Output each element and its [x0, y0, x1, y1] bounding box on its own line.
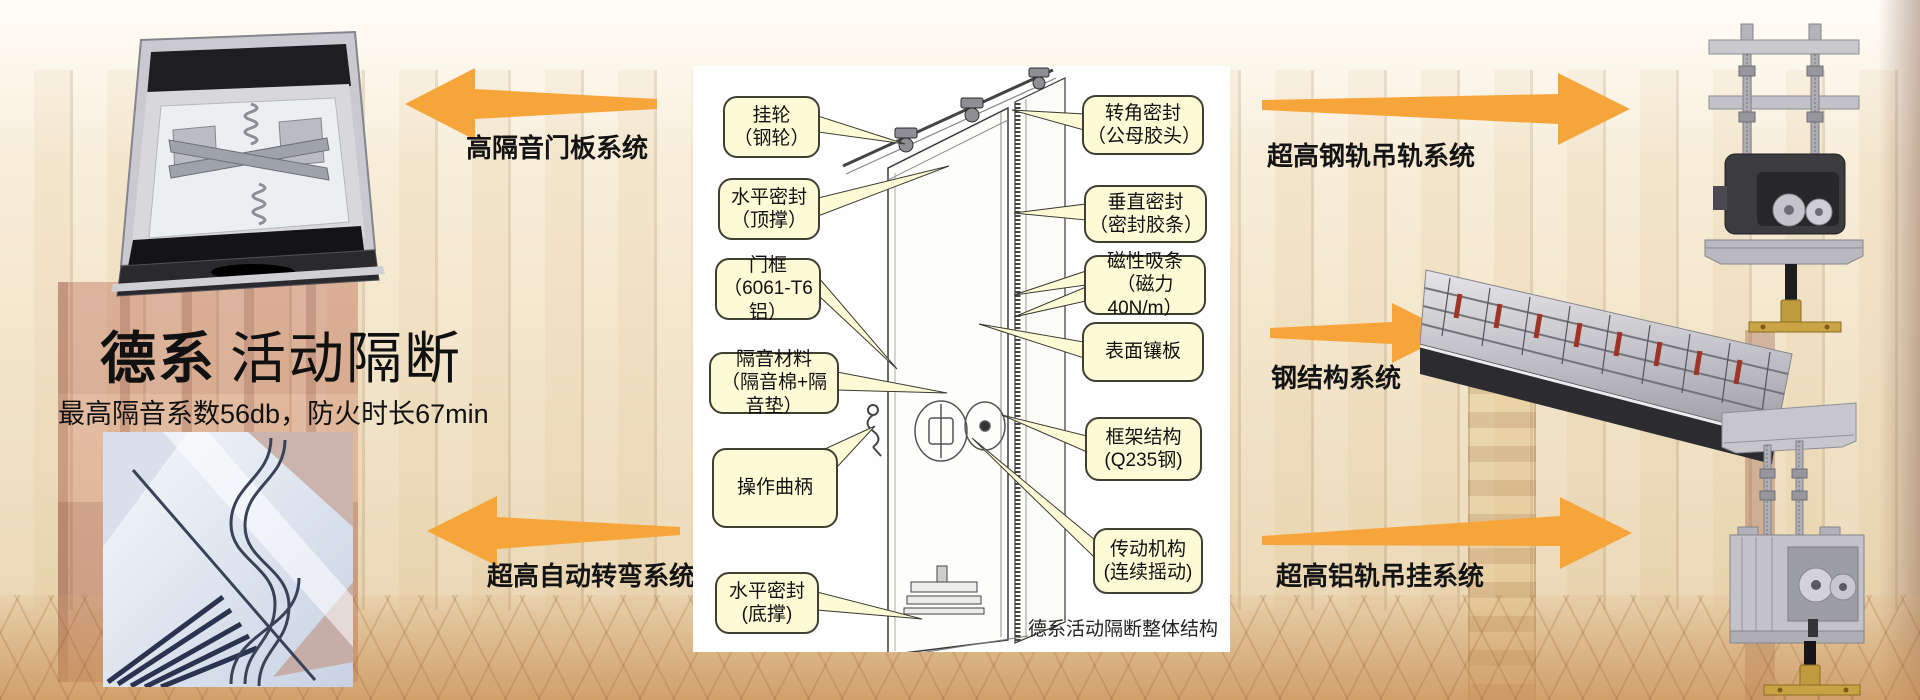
callout-horizontal-seal-bottom: 水平密封 (底撑)	[715, 572, 819, 634]
product-title-brand: 德系	[100, 327, 216, 390]
door-panel-outline	[888, 108, 1008, 652]
poster-stage: 高隔音门板系统 超高自动转弯系统 超高钢轨吊轨系统 钢结构系统 超高铝轨吊挂系统…	[0, 0, 1920, 700]
callout-magnetic-strip: 磁性吸条 （磁力40N/m）	[1084, 255, 1206, 315]
callout-corner-seal: 转角密封 （公母胶头）	[1082, 95, 1204, 155]
callout-transmission-mechanism: 传动机构 (连续摇动)	[1093, 528, 1203, 594]
product-title: 德系活动隔断	[100, 314, 462, 395]
product-title-type: 活动隔断	[230, 327, 462, 390]
callout-operating-crank: 操作曲柄	[712, 448, 838, 528]
arrow-right-middle	[1270, 303, 1452, 363]
callout-hanging-wheel: 挂轮 （钢轮）	[723, 96, 820, 158]
callout-sound-insulation-material: 隔音材料 （隔音棉+隔音垫）	[709, 352, 839, 414]
structure-diagram-panel: 挂轮 （钢轮） 水平密封 （顶撑） 门框 （6061-T6铝） 隔音材料 （隔音…	[693, 66, 1230, 652]
callout-frame-structure: 框架结构 (Q235钢)	[1085, 417, 1202, 481]
arrow-right-top	[1262, 73, 1630, 145]
product-subtitle: 最高隔音系数56db，防火时长67min	[58, 392, 489, 431]
label-steel-rail-system: 超高钢轨吊轨系统	[1267, 136, 1475, 173]
diagram-caption: 德系活动隔断整体结构	[1003, 614, 1243, 641]
door-panel-edge-outline	[1015, 78, 1065, 643]
label-aluminum-rail-system: 超高铝轨吊挂系统	[1276, 556, 1484, 593]
callout-vertical-seal: 垂直密封 （密封胶条）	[1084, 185, 1207, 243]
callout-horizontal-seal-top: 水平密封 （顶撑）	[718, 178, 820, 240]
label-steel-structure-system: 钢结构系统	[1271, 358, 1401, 395]
label-auto-turning-system: 超高自动转弯系统	[487, 556, 695, 593]
callout-door-frame: 门框 （6061-T6铝）	[715, 258, 821, 320]
leader-hanging-wheel	[818, 116, 905, 144]
label-door-panel-system: 高隔音门板系统	[466, 128, 648, 165]
callout-surface-panel: 表面镶板	[1082, 322, 1204, 382]
